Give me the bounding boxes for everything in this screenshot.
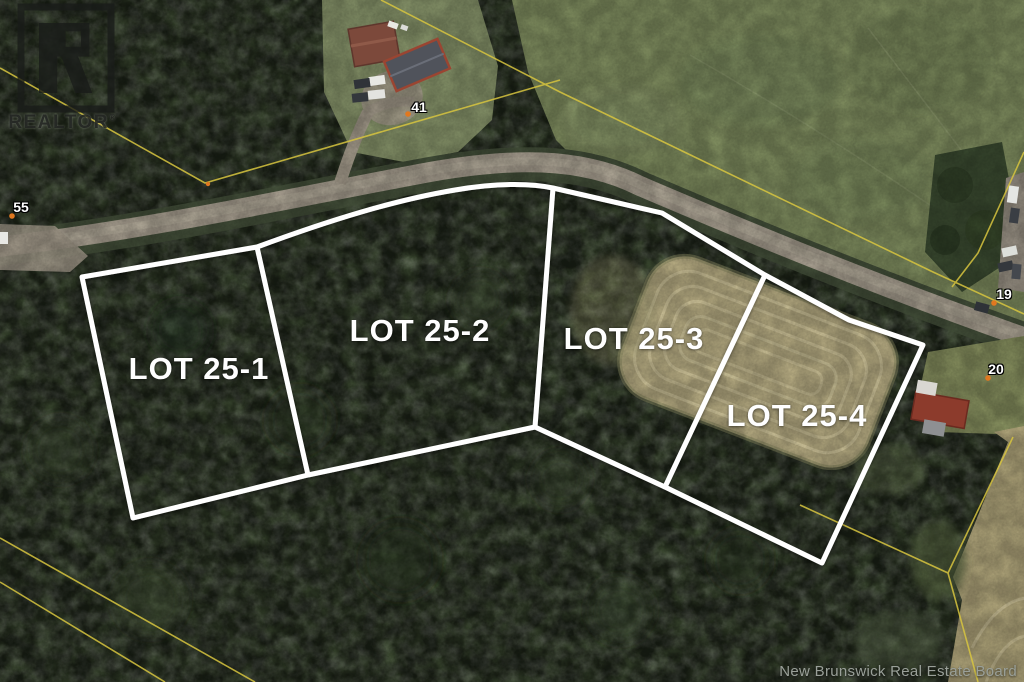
terrain-grain — [0, 0, 1024, 682]
registered-symbol: ® — [109, 113, 116, 123]
realtor-logo: REALTOR® — [0, 2, 122, 142]
lot-label-25-1: LOT 25-1 — [129, 351, 270, 387]
realtor-wordmark: REALTOR® — [3, 112, 121, 134]
civic-number-19: 19 — [996, 286, 1012, 302]
lot-label-25-4: LOT 25-4 — [727, 398, 868, 434]
lot-label-25-3: LOT 25-3 — [564, 321, 705, 357]
lot-label-25-2: LOT 25-2 — [350, 313, 491, 349]
civic-number-20: 20 — [988, 361, 1004, 377]
satellite-terrain — [0, 0, 1024, 682]
aerial-lot-map: REALTOR® LOT 25-1 LOT 25-2 LOT 25-3 LOT … — [0, 0, 1024, 682]
attribution-text: New Brunswick Real Estate Board — [779, 663, 1017, 680]
civic-number-41: 41 — [411, 99, 427, 115]
civic-number-55: 55 — [13, 199, 29, 215]
vehicle-left-edge — [0, 232, 8, 244]
realtor-block-r-icon — [0, 2, 122, 114]
